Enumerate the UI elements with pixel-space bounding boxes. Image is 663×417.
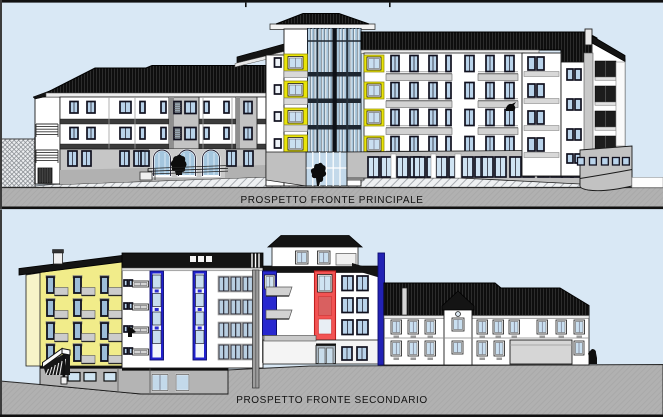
svg-text:PROSPETTO FRONTE PRINCIPALE: PROSPETTO FRONTE PRINCIPALE (240, 195, 423, 206)
svg-text:PROSPETTO FRONTE SECONDARIO: PROSPETTO FRONTE SECONDARIO (236, 395, 428, 406)
